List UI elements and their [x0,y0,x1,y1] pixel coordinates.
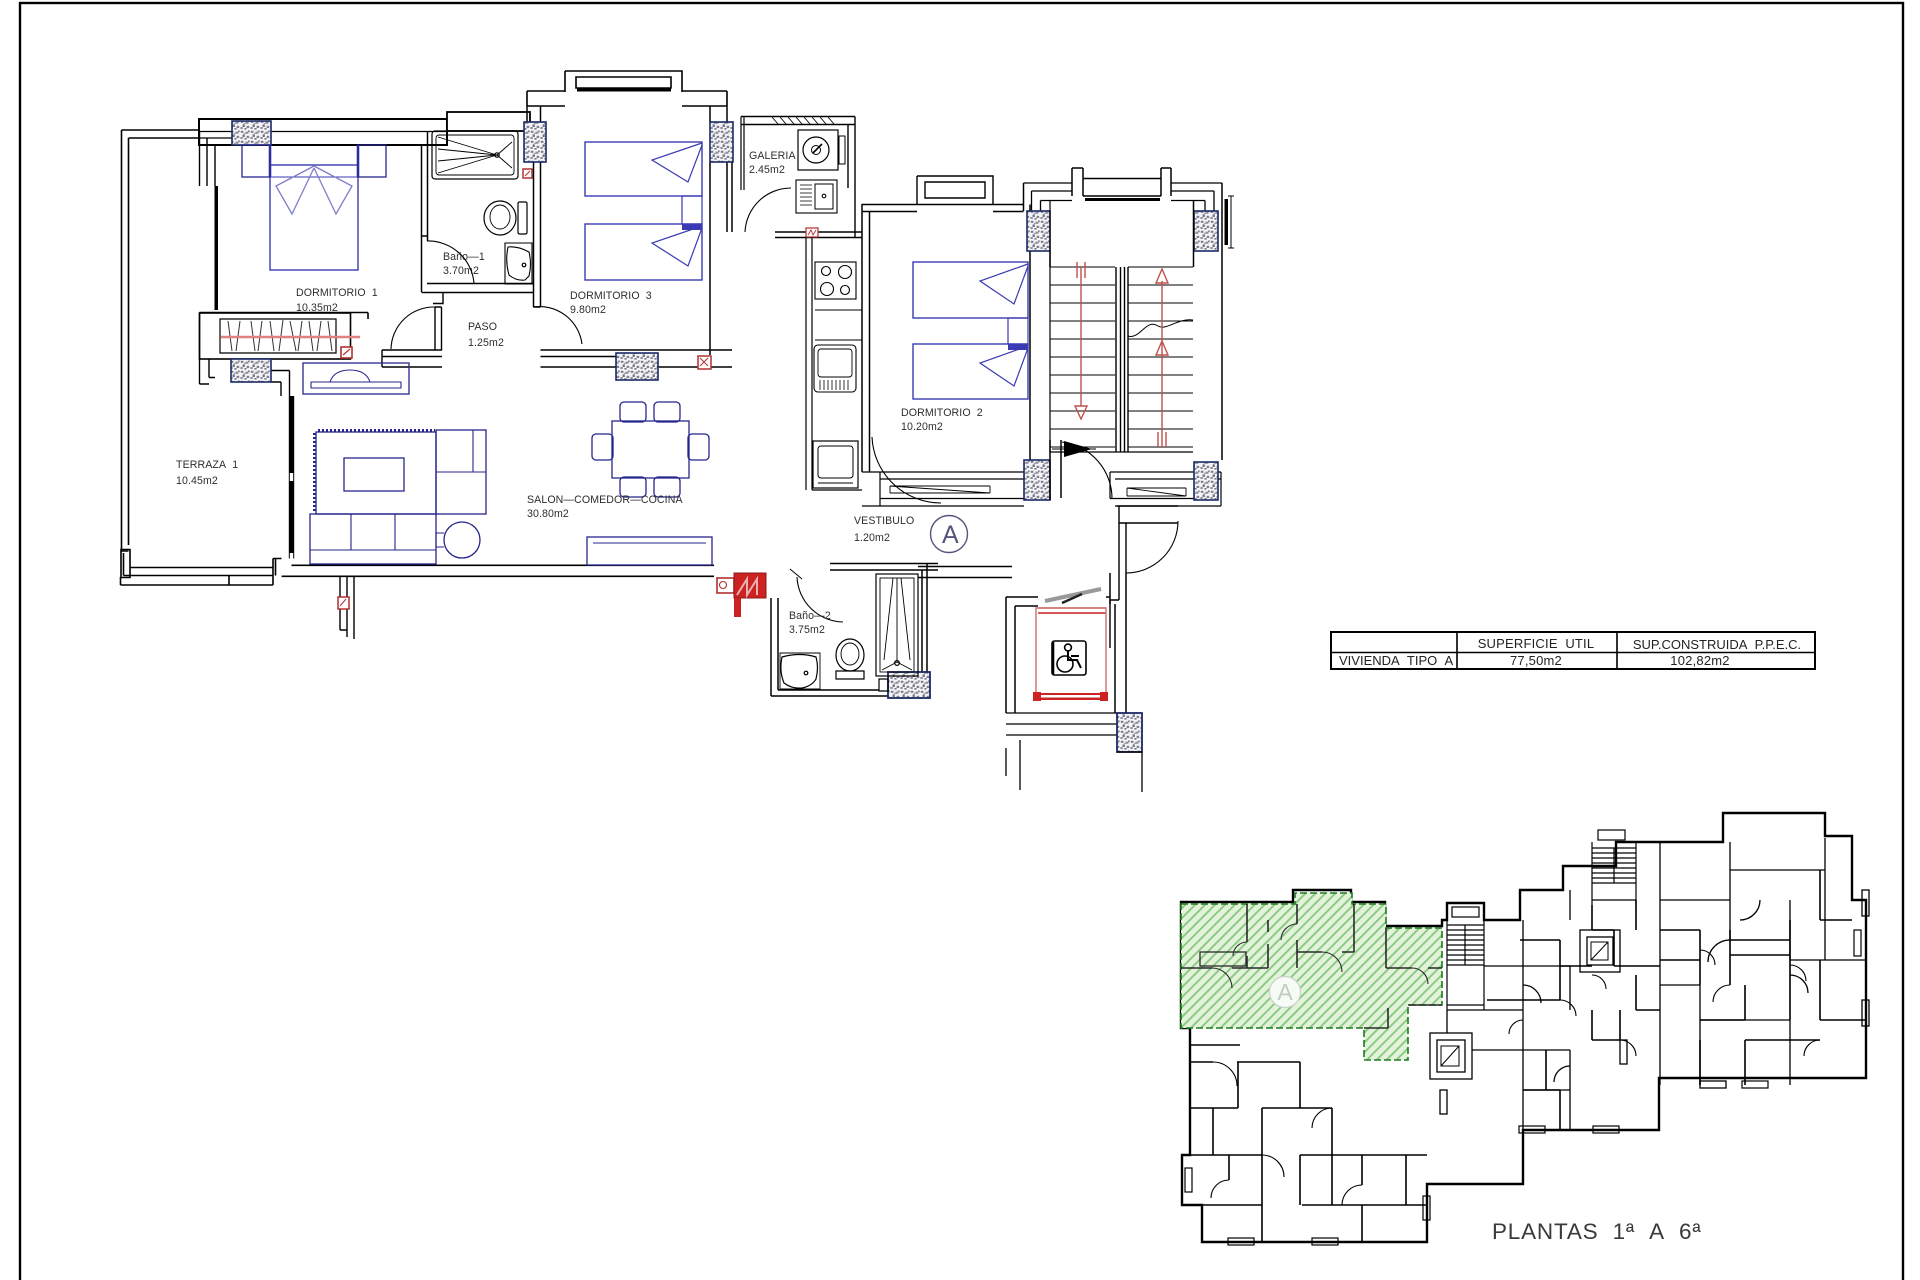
svg-text:GALERIA: GALERIA [749,150,796,162]
svg-text:2.45m2: 2.45m2 [749,164,785,176]
svg-text:1.25m2: 1.25m2 [468,337,504,349]
svg-text:DORMITORIO 1: DORMITORIO 1 [296,287,378,299]
svg-text:10.45m2: 10.45m2 [176,475,218,487]
svg-text:SUP.CONSTRUIDA P.P.E.C.: SUP.CONSTRUIDA P.P.E.C. [1633,637,1801,652]
svg-text:TERRAZA 1: TERRAZA 1 [176,459,238,471]
svg-text:A: A [1277,979,1293,1005]
svg-text:PLANTAS 1ª A 6ª: PLANTAS 1ª A 6ª [1492,1219,1701,1244]
svg-text:Baño—1: Baño—1 [443,251,485,263]
svg-text:Baño—2: Baño—2 [789,610,831,622]
svg-text:9.80m2: 9.80m2 [570,304,606,316]
svg-text:PASO: PASO [468,321,497,333]
svg-text:1.20m2: 1.20m2 [854,532,890,544]
svg-text:VESTIBULO: VESTIBULO [854,515,914,527]
svg-text:A: A [942,521,959,549]
svg-text:DORMITORIO 3: DORMITORIO 3 [570,290,652,302]
svg-text:77,50m2: 77,50m2 [1510,653,1562,668]
svg-text:3.70m2: 3.70m2 [443,265,479,277]
svg-text:SALON—COMEDOR—COCINA: SALON—COMEDOR—COCINA [527,494,683,506]
svg-text:102,82m2: 102,82m2 [1670,653,1729,668]
svg-text:3.75m2: 3.75m2 [789,624,825,636]
svg-text:10.20m2: 10.20m2 [901,421,943,433]
svg-text:DORMITORIO 2: DORMITORIO 2 [901,407,983,419]
svg-text:SUPERFICIE UTIL: SUPERFICIE UTIL [1478,636,1595,651]
svg-text:30.80m2: 30.80m2 [527,508,569,520]
svg-text:VIVIENDA TIPO A: VIVIENDA TIPO A [1339,653,1453,668]
